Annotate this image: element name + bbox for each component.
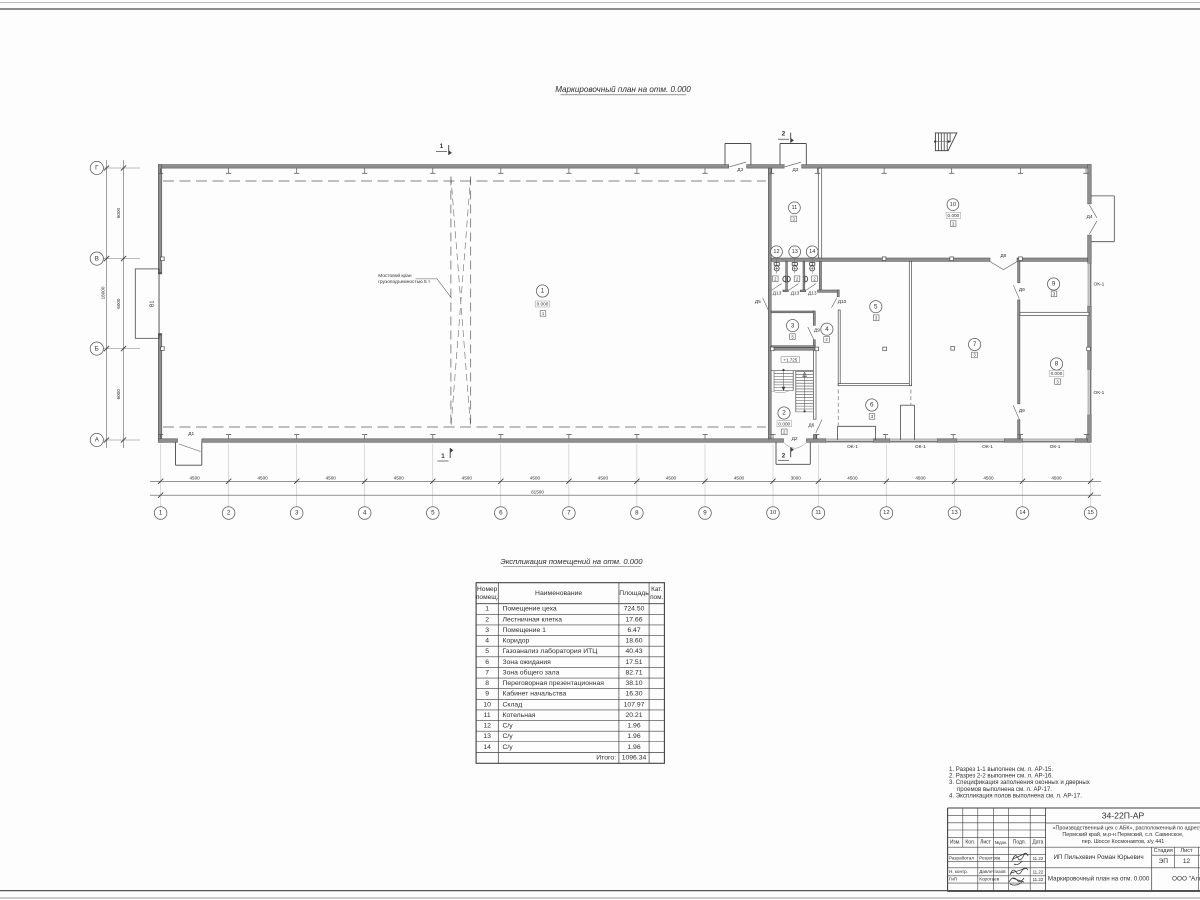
svg-text:Маркировочный план на отм. 0.: Маркировочный план на отм. 0.000 — [555, 85, 691, 94]
svg-text:Кат.: Кат. — [651, 586, 662, 593]
svg-text:Мостовой кран: Мостовой кран — [378, 272, 412, 279]
svg-text:4500: 4500 — [189, 476, 200, 481]
svg-text:82.71: 82.71 — [625, 669, 642, 676]
svg-text:2: 2 — [782, 131, 786, 138]
svg-text:Д10: Д10 — [838, 299, 847, 305]
svg-text:Д13: Д13 — [808, 291, 817, 297]
svg-text:11: 11 — [791, 205, 797, 211]
svg-text:ОК-1: ОК-1 — [1094, 282, 1105, 288]
svg-text:ОК-1: ОК-1 — [847, 444, 858, 450]
svg-text:12: 12 — [773, 249, 779, 255]
svg-text:6: 6 — [499, 510, 503, 517]
svg-text:4500: 4500 — [734, 476, 745, 481]
svg-text:1: 1 — [541, 288, 545, 295]
svg-text:Газоанализ лаборатория ИТЦ: Газоанализ лаборатория ИТЦ — [503, 647, 598, 655]
svg-text:Кол.: Кол. — [965, 839, 975, 845]
svg-text:11: 11 — [484, 712, 491, 719]
svg-text:0.000: 0.000 — [778, 421, 790, 426]
svg-text:16.30: 16.30 — [625, 691, 642, 698]
svg-text:13: 13 — [483, 733, 491, 740]
svg-text:12: 12 — [483, 723, 491, 730]
svg-text:Наименование: Наименование — [535, 590, 582, 597]
svg-text:Кабинет начальства: Кабинет начальства — [503, 690, 567, 698]
svg-text:Помещение 1: Помещение 1 — [503, 627, 547, 634]
svg-text:Экспликация помещений на отм.: Экспликация помещений на отм. 0.000 — [500, 557, 643, 566]
svg-text:4500: 4500 — [847, 476, 858, 481]
svg-text:Д3: Д3 — [792, 167, 798, 173]
svg-text:ОК-1: ОК-1 — [915, 444, 926, 450]
svg-text:В1: В1 — [150, 301, 156, 307]
svg-text:5: 5 — [874, 303, 878, 310]
svg-text:10: 10 — [950, 202, 956, 208]
svg-text:40.43: 40.43 — [625, 648, 642, 655]
svg-text:1: 1 — [159, 510, 163, 517]
svg-text:4: 4 — [363, 510, 367, 517]
svg-text:7: 7 — [973, 341, 977, 348]
svg-text:34-22П-АР: 34-22П-АР — [1102, 811, 1145, 821]
svg-text:11.22: 11.22 — [1033, 870, 1044, 875]
svg-text:ГиП: ГиП — [949, 877, 957, 882]
svg-text:Б: Б — [95, 345, 99, 352]
svg-text:Д4: Д4 — [1087, 214, 1093, 220]
svg-text:9: 9 — [485, 691, 489, 698]
svg-text:Коридор: Коридор — [503, 638, 530, 645]
svg-text:Д9: Д9 — [814, 328, 820, 334]
svg-text:ИП Пильхевич Роман Юрьевич: ИП Пильхевич Роман Юрьевич — [1054, 854, 1144, 861]
svg-text:Котельная: Котельная — [503, 712, 536, 719]
svg-text:Разработал: Разработал — [949, 856, 974, 861]
svg-text:пер. Шоссе Космонавтов, з/у 44: пер. Шоссе Космонавтов, з/у 441 — [1082, 839, 1164, 845]
svg-text:Дата: Дата — [1032, 839, 1043, 845]
svg-text:8: 8 — [1055, 361, 1059, 368]
svg-text:Д9: Д9 — [1019, 287, 1025, 293]
svg-text:Зона ожидания: Зона ожидания — [503, 659, 552, 666]
svg-text:Д3: Д3 — [737, 167, 743, 173]
svg-text:4: 4 — [485, 638, 489, 645]
svg-text:помещ.: помещ. — [476, 594, 499, 601]
svg-text:С/у: С/у — [503, 723, 514, 730]
svg-text:13: 13 — [792, 249, 798, 255]
svg-text:6000: 6000 — [116, 207, 121, 218]
svg-text:грузоподъемностью 5 т: грузоподъемностью 5 т — [378, 279, 431, 285]
svg-text:7: 7 — [485, 669, 489, 676]
svg-text:Подп.: Подп. — [1013, 839, 1026, 845]
svg-text:3: 3 — [791, 322, 795, 329]
svg-text:0.000: 0.000 — [1051, 371, 1063, 376]
svg-text:6.47: 6.47 — [627, 627, 640, 634]
svg-text:4500: 4500 — [666, 476, 677, 481]
svg-text:18.60: 18.60 — [625, 638, 642, 645]
svg-text:Зона общего зала: Зона общего зала — [503, 668, 560, 676]
svg-text:10: 10 — [483, 701, 491, 708]
svg-text:6: 6 — [485, 659, 489, 666]
svg-text:Маркировочный план на отм. 0.0: Маркировочный план на отм. 0.000 — [1048, 875, 1150, 882]
svg-text:3000: 3000 — [791, 476, 802, 481]
svg-text:1: 1 — [485, 606, 489, 613]
svg-text:Лист: Лист — [1180, 848, 1193, 854]
svg-text:2: 2 — [227, 510, 231, 517]
svg-text:Д8: Д8 — [1000, 253, 1006, 259]
svg-text:38.10: 38.10 — [625, 680, 642, 687]
svg-text:Итого:: Итого: — [596, 755, 616, 762]
svg-text:Решетова: Решетова — [979, 856, 1000, 861]
svg-text:0.000: 0.000 — [948, 213, 960, 218]
svg-text:ОК-1: ОК-1 — [1050, 444, 1061, 450]
svg-text:ОК-1: ОК-1 — [1094, 390, 1105, 396]
svg-text:6000: 6000 — [116, 298, 121, 309]
svg-text:пом.: пом. — [650, 594, 663, 601]
svg-text:4. Экспликация полов выполнена: 4. Экспликация полов выполнена см. л. АР… — [949, 793, 1082, 800]
svg-text:Д1: Д1 — [188, 431, 194, 437]
svg-text:5: 5 — [485, 648, 489, 655]
svg-text:1.96: 1.96 — [627, 744, 640, 751]
svg-text:2: 2 — [485, 616, 489, 623]
svg-text:12: 12 — [883, 510, 889, 516]
svg-text:2: 2 — [782, 410, 786, 417]
svg-text:4500: 4500 — [1051, 476, 1062, 481]
svg-text:1: 1 — [441, 453, 445, 460]
svg-text:7: 7 — [567, 510, 571, 517]
svg-text:ОК-1: ОК-1 — [982, 444, 993, 450]
svg-text:Переговорная презентационная: Переговорная презентационная — [503, 680, 605, 687]
svg-text:Коротаев: Коротаев — [979, 877, 999, 882]
svg-text:№док.: №док. — [994, 840, 1007, 845]
svg-text:«Производственный цех с АБК»,: «Производственный цех с АБК», расположен… — [1052, 824, 1200, 831]
svg-text:11: 11 — [815, 510, 821, 516]
svg-text:3: 3 — [295, 510, 299, 517]
svg-text:Номер: Номер — [477, 586, 498, 593]
svg-text:Лестничная клетка: Лестничная клетка — [503, 616, 563, 623]
svg-text:724.50: 724.50 — [624, 606, 645, 613]
svg-text:Давлетгазов: Давлетгазов — [979, 869, 1006, 874]
svg-text:8: 8 — [635, 510, 639, 517]
svg-text:Н. контр.: Н. контр. — [949, 869, 968, 874]
svg-text:Д6: Д6 — [808, 422, 814, 428]
svg-text:ООО "Альфа": ООО "Альфа" — [1172, 875, 1200, 882]
svg-text:Д2: Д2 — [792, 436, 798, 442]
svg-text:0.000: 0.000 — [537, 302, 549, 307]
svg-text:20.21: 20.21 — [625, 712, 642, 719]
svg-text:1.96: 1.96 — [627, 723, 640, 730]
svg-text:8: 8 — [485, 680, 489, 687]
svg-text:4500: 4500 — [598, 476, 609, 481]
svg-text:+1.725: +1.725 — [783, 357, 797, 362]
svg-text:С/у: С/у — [503, 744, 514, 751]
svg-text:Стадия: Стадия — [1154, 848, 1173, 854]
svg-text:4500: 4500 — [462, 476, 473, 481]
svg-text:14: 14 — [1019, 510, 1026, 516]
svg-text:10: 10 — [770, 510, 776, 516]
svg-text:4500: 4500 — [530, 476, 541, 481]
svg-text:Помещение цеха: Помещение цеха — [503, 606, 557, 613]
svg-text:3: 3 — [485, 627, 489, 634]
svg-text:В: В — [95, 255, 99, 262]
svg-text:С/у: С/у — [503, 733, 514, 740]
svg-text:4500: 4500 — [915, 476, 926, 481]
svg-text:Д5: Д5 — [755, 299, 761, 305]
svg-text:Площадь: Площадь — [619, 590, 649, 597]
svg-text:14: 14 — [809, 249, 815, 255]
svg-text:17.66: 17.66 — [625, 616, 642, 623]
svg-text:61500: 61500 — [531, 490, 544, 495]
svg-text:4500: 4500 — [983, 476, 994, 481]
svg-text:Изм.: Изм. — [950, 839, 961, 845]
svg-text:Д13: Д13 — [773, 291, 782, 297]
svg-text:4500: 4500 — [257, 476, 268, 481]
svg-text:6: 6 — [870, 402, 874, 409]
svg-text:1096.34: 1096.34 — [622, 755, 647, 762]
svg-text:14: 14 — [483, 744, 491, 751]
svg-text:4500: 4500 — [394, 476, 405, 481]
svg-text:2: 2 — [782, 452, 786, 459]
svg-text:18000: 18000 — [100, 286, 105, 299]
svg-text:9: 9 — [703, 510, 707, 517]
svg-text:Лист: Лист — [980, 839, 992, 845]
svg-text:15: 15 — [1087, 510, 1093, 516]
svg-text:1: 1 — [440, 143, 444, 150]
svg-text:6000: 6000 — [116, 389, 121, 400]
svg-text:Д13: Д13 — [791, 291, 800, 297]
svg-text:107.97: 107.97 — [624, 701, 645, 708]
svg-text:Д9: Д9 — [1019, 408, 1025, 414]
svg-text:1.96: 1.96 — [627, 733, 640, 740]
svg-text:11.22: 11.22 — [1033, 856, 1044, 861]
svg-text:Пермский край, м.р-н Пермский,: Пермский край, м.р-н Пермский, с.п. Сави… — [1062, 831, 1184, 838]
svg-text:ЭП: ЭП — [1158, 858, 1168, 865]
svg-text:17.51: 17.51 — [625, 659, 642, 666]
svg-text:4: 4 — [825, 326, 829, 333]
svg-text:9: 9 — [1052, 281, 1056, 288]
svg-text:Склад: Склад — [503, 701, 523, 708]
svg-text:4500: 4500 — [326, 476, 337, 481]
svg-text:11.22: 11.22 — [1033, 877, 1044, 882]
svg-text:13: 13 — [951, 510, 957, 516]
svg-text:12: 12 — [1183, 858, 1191, 865]
svg-text:5: 5 — [431, 510, 435, 517]
